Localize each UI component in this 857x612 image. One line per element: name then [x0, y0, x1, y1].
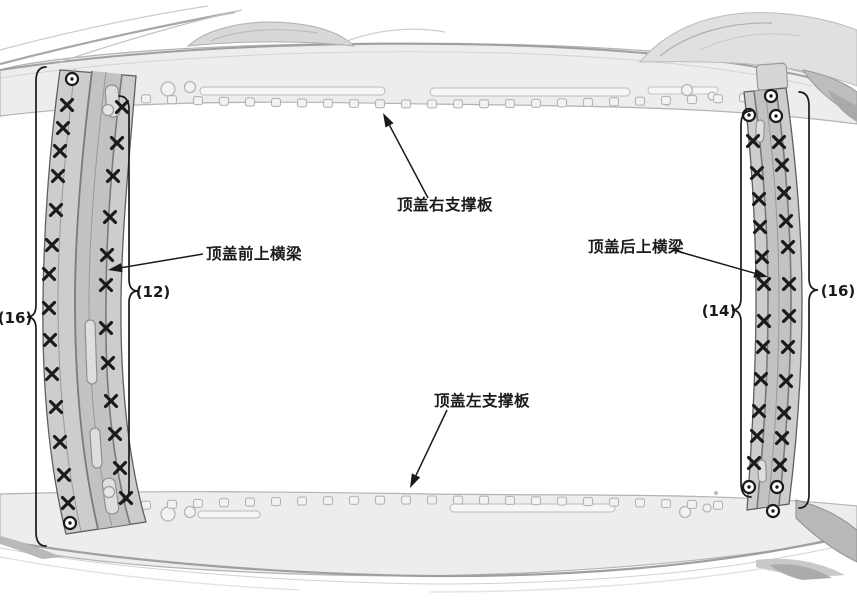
- roof-left-stiffener-callout: 顶盖左支撑板: [410, 391, 530, 488]
- rail-hole: [161, 507, 175, 521]
- rail-notch: [662, 96, 671, 104]
- leader-line: [416, 410, 447, 475]
- plug-weld-circle-mark: [770, 110, 782, 122]
- rail-notch: [402, 496, 411, 504]
- rail-notch: [272, 498, 281, 506]
- roof-panel-hump: [188, 22, 445, 46]
- rail-notch: [584, 498, 593, 506]
- rail-notch: [142, 501, 151, 509]
- leader-line: [390, 125, 428, 198]
- roof-front-upper-crossmember-label: 顶盖前上横梁: [206, 244, 302, 263]
- rail-notch: [558, 497, 567, 505]
- rail-notch: [220, 97, 229, 105]
- rail-notch: [714, 95, 723, 103]
- rail-notch: [350, 100, 359, 108]
- rail-notch: [168, 96, 177, 104]
- rail-notch: [610, 498, 619, 506]
- rail-notch: [532, 99, 541, 107]
- rail-notch: [480, 496, 489, 504]
- rail-notch: [584, 98, 593, 106]
- rail-hole: [185, 82, 196, 93]
- rail-notch: [298, 497, 307, 505]
- rail-notch: [376, 496, 385, 504]
- plug-weld-circle-mark: [64, 517, 76, 529]
- leader-arrowhead: [410, 473, 420, 488]
- rail-notch: [688, 500, 697, 508]
- rail-notch: [350, 496, 359, 504]
- rail-hole: [185, 507, 196, 518]
- rail-notch: [298, 99, 307, 107]
- leader-arrowhead: [383, 113, 394, 128]
- diagram-canvas: (16)(12)(14)(16)顶盖右支撑板顶盖前上横梁顶盖后上横梁顶盖左支撑板: [0, 0, 857, 612]
- rail-notch: [688, 96, 697, 104]
- rail-hole: [714, 491, 718, 495]
- weld-count-label: (16): [821, 282, 856, 300]
- rail-notch: [506, 496, 515, 504]
- plug-weld-circle-mark: [767, 505, 779, 517]
- rail-notch: [376, 100, 385, 108]
- rail-notch: [428, 496, 437, 504]
- rail-hole: [703, 504, 711, 512]
- rail-notch: [558, 99, 567, 107]
- weld-diagram: (16)(12)(14)(16)顶盖右支撑板顶盖前上横梁顶盖后上横梁顶盖左支撑板: [0, 0, 857, 612]
- rail-hole: [682, 85, 693, 96]
- plug-weld-circle-mark: [771, 481, 783, 493]
- rail-notch: [454, 496, 463, 504]
- rail-notch: [480, 100, 489, 108]
- roof-right-stiffener-callout: 顶盖右支撑板: [383, 113, 493, 214]
- rail-slot: [430, 88, 630, 96]
- rail-notch: [454, 100, 463, 108]
- plug-weld-circle-mark: [765, 90, 777, 102]
- rail-notch: [506, 100, 515, 108]
- crossmember-top-bracket: [756, 63, 788, 91]
- leader-line: [673, 250, 755, 273]
- weld-count-label: (14): [702, 302, 737, 320]
- front-roof-upper-crossmember: [43, 69, 146, 534]
- rail-notch: [194, 97, 203, 105]
- rail-notch: [636, 97, 645, 105]
- leader-line: [122, 254, 203, 268]
- rail-notch: [272, 98, 281, 106]
- roof-front-upper-crossmember-callout: 顶盖前上横梁: [108, 244, 302, 272]
- rail-notch: [246, 498, 255, 506]
- rail-slot: [198, 511, 260, 518]
- roof-left-stiffener-label: 顶盖左支撑板: [434, 391, 530, 410]
- rail-notch: [428, 100, 437, 108]
- rail-hole: [161, 82, 175, 96]
- plug-weld-circle-mark: [743, 481, 755, 493]
- rail-notch: [662, 500, 671, 508]
- rail-notch: [142, 95, 151, 103]
- rail-notch: [194, 499, 203, 507]
- weld-count-label: (12): [136, 283, 171, 301]
- roof-right-stiffener-label: 顶盖右支撑板: [397, 195, 493, 214]
- rail-notch: [532, 497, 541, 505]
- plug-weld-circle-mark: [66, 73, 78, 85]
- rail-notch: [168, 500, 177, 508]
- weld-count-label: (16): [0, 309, 32, 327]
- rail-notch: [324, 497, 333, 505]
- rail-notch: [610, 98, 619, 106]
- rail-notch: [220, 499, 229, 507]
- rail-notch: [714, 501, 723, 509]
- rail-notch: [246, 98, 255, 106]
- rail-notch: [402, 100, 411, 108]
- rail-notch: [636, 499, 645, 507]
- rail-notch: [324, 99, 333, 107]
- rail-slot: [200, 87, 385, 95]
- roof-rear-upper-crossmember-label: 顶盖后上横梁: [588, 237, 684, 256]
